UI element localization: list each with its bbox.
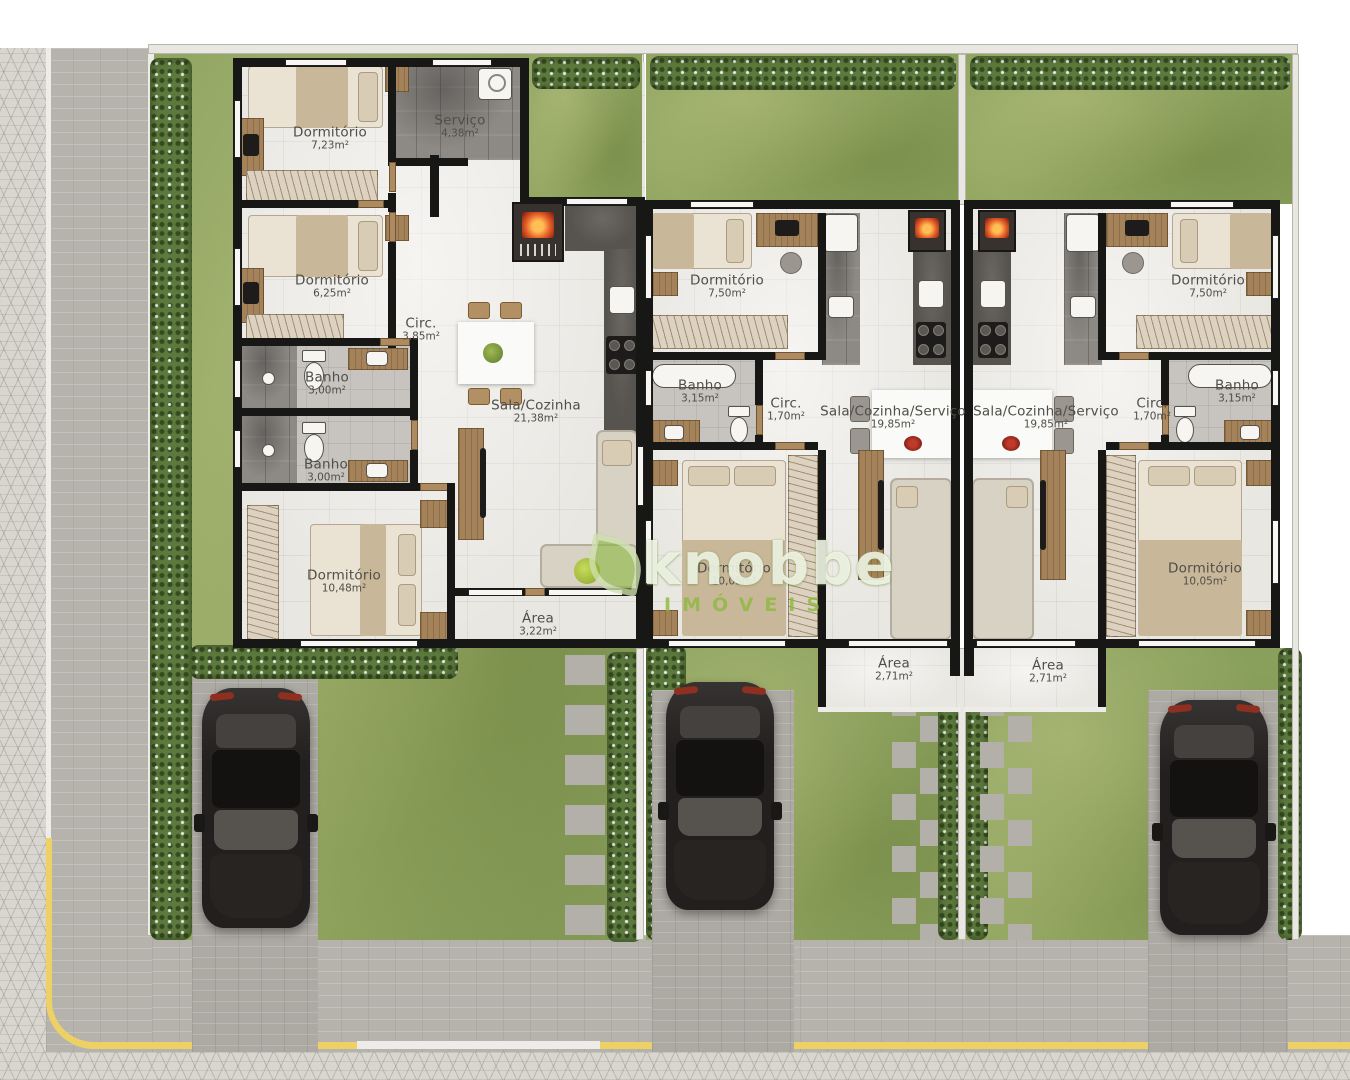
door <box>775 352 805 360</box>
bed-blanket <box>652 213 694 269</box>
house1-notch-hedge <box>532 57 640 89</box>
laundry-sink <box>1070 296 1096 318</box>
window <box>1272 370 1279 406</box>
wall <box>950 648 960 676</box>
wall <box>648 442 775 450</box>
lot2-hedge-top <box>650 56 956 90</box>
grill-fire <box>522 212 554 238</box>
sofa-cushion <box>602 440 632 466</box>
bed-blanket <box>296 66 348 128</box>
toilet-bowl <box>730 417 748 443</box>
room-label-h2-sala: Sala/Cozinha/Serviço 19,85m² <box>820 404 966 431</box>
room-name: Dormitório <box>1168 561 1242 577</box>
bath-basin <box>664 425 684 440</box>
bed-pillow <box>734 466 776 486</box>
window <box>1138 640 1256 647</box>
window <box>285 59 347 66</box>
porch-edge <box>964 707 1106 712</box>
sidewalk-left <box>0 48 46 1080</box>
chair <box>468 388 490 405</box>
room-name: Sala/Cozinha <box>491 398 581 414</box>
cooktop <box>978 322 1008 358</box>
car-3 <box>1160 700 1268 935</box>
window <box>1272 520 1279 584</box>
wall <box>430 155 439 217</box>
toilet <box>728 406 750 417</box>
window <box>300 640 418 647</box>
door <box>411 420 418 450</box>
kitchen-sink <box>609 286 635 314</box>
wall <box>1106 442 1119 450</box>
room-area: 3,00m² <box>304 472 348 484</box>
door <box>389 212 396 242</box>
car-windshield <box>1172 819 1256 858</box>
wall <box>1149 442 1276 450</box>
car-hood <box>210 854 302 918</box>
room-label-h1-dormitorio2: Dormitório 6,25m² <box>295 273 369 300</box>
window <box>637 446 644 506</box>
porch-edge <box>818 707 960 712</box>
grill-fire <box>985 218 1009 238</box>
lot1-hedge-road <box>150 58 192 940</box>
toilet-bowl <box>1176 417 1194 443</box>
room-area: 3,00m² <box>305 385 349 397</box>
car-1 <box>202 688 310 928</box>
room-label-h3-sala: Sala/Cozinha/Serviço 19,85m² <box>973 404 1119 431</box>
wardrobe <box>246 170 378 202</box>
site-plan: Dormitório 7,23m² Serviço 4,38m² Dormitó… <box>0 0 1350 1080</box>
room-label-h1-servico: Serviço 4,38m² <box>434 113 485 140</box>
room-label-h3-banho: Banho 3,15m² <box>1215 378 1259 405</box>
table-flowers <box>904 436 922 451</box>
room-area: 10,48m² <box>307 583 381 595</box>
bed-blanket <box>1138 540 1242 636</box>
room-name: Banho <box>305 370 349 386</box>
room-label-h2-banho: Banho 3,15m² <box>678 378 722 405</box>
bath-basin <box>366 351 388 366</box>
nightstand <box>420 500 450 528</box>
sofa-cushion <box>896 486 918 508</box>
tv <box>480 448 486 518</box>
nightstand <box>1246 272 1272 296</box>
room-name: Área <box>1029 658 1067 674</box>
room-label-h1-banho2: Banho 3,00m² <box>304 457 348 484</box>
door <box>420 483 450 491</box>
chair <box>468 302 490 319</box>
wall <box>1098 213 1106 360</box>
room-area: 2,71m² <box>875 671 913 683</box>
nightstand <box>1246 610 1272 636</box>
bed-pillow <box>1194 466 1236 486</box>
car-windshield <box>678 798 762 836</box>
fridge <box>1066 214 1100 252</box>
room-name: Circ. <box>767 396 805 412</box>
watermark-brand: knobbe <box>642 530 896 598</box>
watermark: knobbe IMÓVEIS <box>580 528 840 628</box>
desk-chair <box>780 252 802 274</box>
car-mirror <box>771 802 782 820</box>
fridge <box>824 214 858 252</box>
wall <box>1106 352 1119 360</box>
wall <box>388 62 396 160</box>
nightstand <box>420 612 450 640</box>
desk-computer <box>243 282 259 304</box>
lot3-stepping-stones <box>980 690 1032 940</box>
table-flowers <box>1002 436 1020 451</box>
wall <box>388 158 468 166</box>
shower-head <box>262 372 275 385</box>
car-taillight <box>210 692 235 701</box>
window <box>566 198 628 205</box>
window <box>234 100 241 158</box>
watermark-subtitle: IMÓVEIS <box>664 594 831 616</box>
lot3-hedge-top <box>970 56 1290 90</box>
window <box>468 589 523 596</box>
room-area: 21,38m² <box>491 413 581 425</box>
car-mirror <box>194 814 205 832</box>
room-area: 1,70m² <box>1133 411 1171 423</box>
lot1-stepping-stones <box>565 655 605 940</box>
nightstand <box>652 272 678 296</box>
room-name: Circ. <box>402 316 440 332</box>
washer-drum <box>488 74 506 92</box>
door <box>358 200 384 208</box>
room-label-h2-circ: Circ. 1,70m² <box>767 396 805 423</box>
curb-left-white <box>46 48 51 840</box>
car-rear-window <box>680 706 760 738</box>
room-name: Dormitório <box>307 568 381 584</box>
shower-head <box>262 444 275 457</box>
window <box>645 370 652 406</box>
wall <box>233 639 645 648</box>
room-name: Serviço <box>434 113 485 129</box>
window <box>432 59 492 66</box>
room-name: Dormitório <box>690 273 764 289</box>
room-label-h3-area: Área 2,71m² <box>1029 658 1067 685</box>
car-roof <box>1170 760 1258 817</box>
car-hood <box>674 840 766 900</box>
wall <box>818 213 826 360</box>
bed-blanket <box>296 215 348 277</box>
table-plant <box>483 343 503 363</box>
toilet <box>1174 406 1196 417</box>
window <box>234 248 241 306</box>
wall <box>1098 648 1106 712</box>
room-area: 7,23m² <box>293 140 367 152</box>
desk-computer <box>775 220 799 236</box>
wardrobe <box>247 505 279 640</box>
chair <box>500 302 522 319</box>
desk-chair <box>1122 252 1144 274</box>
fence-divider1-bottom <box>636 648 644 940</box>
car-hood <box>1168 862 1260 924</box>
car-roof <box>676 740 764 796</box>
nightstand <box>652 460 678 486</box>
room-area: 3,22m² <box>519 626 557 638</box>
room-label-h1-banho1: Banho 3,00m² <box>305 370 349 397</box>
window <box>668 640 786 647</box>
window <box>645 235 652 299</box>
room-label-h1-area: Área 3,22m² <box>519 611 557 638</box>
room-area: 10,05m² <box>1168 576 1242 588</box>
car-taillight <box>742 686 767 695</box>
wall <box>237 483 420 491</box>
window <box>234 430 241 468</box>
door <box>756 405 763 435</box>
car-mirror <box>1152 823 1163 841</box>
room-area: 1,70m² <box>767 411 805 423</box>
bath-basin <box>1240 425 1260 440</box>
porch-door <box>525 588 545 596</box>
sliding-door <box>976 640 1076 647</box>
cooktop <box>916 322 946 358</box>
wall <box>818 648 826 712</box>
bed-pillow <box>398 534 416 576</box>
bed-pillow <box>358 72 378 122</box>
wall <box>805 352 818 360</box>
fence-top <box>148 44 1298 54</box>
car-taillight <box>1168 704 1193 713</box>
room-area: 3,85m² <box>402 331 440 343</box>
wall <box>964 648 974 676</box>
tv <box>1040 480 1046 550</box>
driveway-apron-marking <box>357 1041 600 1049</box>
wardrobe <box>652 315 788 349</box>
room-area: 7,50m² <box>1171 288 1245 300</box>
room-name: Área <box>519 611 557 627</box>
car-mirror <box>307 814 318 832</box>
kitchen-sink <box>980 280 1006 308</box>
wall <box>520 58 529 206</box>
lot2-stepping-stones <box>892 690 944 940</box>
room-area: 6,25m² <box>295 288 369 300</box>
watermark-leaf-icon <box>583 533 647 597</box>
door <box>1119 442 1149 450</box>
car-rear-window <box>216 714 296 748</box>
window <box>1272 235 1279 299</box>
bed-pillow <box>1180 219 1198 263</box>
room-name: Dormitório <box>293 125 367 141</box>
room-label-h3-dormitorio2: Dormitório 10,05m² <box>1168 561 1242 588</box>
lot1-hedge-front <box>190 645 458 679</box>
car-roof <box>212 750 300 808</box>
room-name: Banho <box>304 457 348 473</box>
car-taillight <box>674 686 699 695</box>
room-name: Banho <box>678 378 722 394</box>
wall <box>237 408 417 416</box>
wardrobe <box>1106 455 1136 637</box>
bath-basin <box>366 463 388 478</box>
sidewalk-bottom <box>0 1052 1350 1080</box>
wall <box>805 442 818 450</box>
room-area: 7,50m² <box>690 288 764 300</box>
room-area: 3,15m² <box>1215 393 1259 405</box>
room-area: 19,85m² <box>820 419 966 431</box>
desk-computer <box>1125 220 1149 236</box>
room-label-h1-dormitorio3: Dormitório 10,48m² <box>307 568 381 595</box>
grill-fire <box>915 218 939 238</box>
bed-pillow <box>688 466 730 486</box>
room-label-h1-dormitorio1: Dormitório 7,23m² <box>293 125 367 152</box>
toilet <box>302 422 326 434</box>
room-area: 19,85m² <box>973 419 1119 431</box>
window <box>1170 201 1234 208</box>
room-name: Sala/Cozinha/Serviço <box>973 404 1119 420</box>
wall <box>755 360 763 405</box>
fence-divider2-top <box>958 54 966 205</box>
room-label-h2-dormitorio1: Dormitório 7,50m² <box>690 273 764 300</box>
room-area: 4,38m² <box>434 128 485 140</box>
door <box>775 442 805 450</box>
room-name: Sala/Cozinha/Serviço <box>820 404 966 420</box>
room-label-h2-area: Área 2,71m² <box>875 656 913 683</box>
room-label-h3-dormitorio1: Dormitório 7,50m² <box>1171 273 1245 300</box>
room-area: 3,15m² <box>678 393 722 405</box>
sofa-cushion <box>1006 486 1028 508</box>
sliding-door <box>848 640 948 647</box>
laundry-sink <box>828 296 854 318</box>
toilet <box>302 350 326 362</box>
room-name: Dormitório <box>295 273 369 289</box>
room-label-h3-circ: Circ. 1,70m² <box>1133 396 1171 423</box>
room-name: Circ. <box>1133 396 1171 412</box>
bed-blanket <box>1230 213 1272 269</box>
wardrobe <box>1136 315 1272 349</box>
wall <box>237 338 380 346</box>
fence-right <box>1292 54 1299 940</box>
door <box>389 162 396 192</box>
car-taillight <box>278 692 303 701</box>
wall <box>648 352 775 360</box>
wall <box>388 193 396 212</box>
car-taillight <box>1236 704 1261 713</box>
kitchen-sink <box>918 280 944 308</box>
kitchen-counter <box>565 205 640 251</box>
room-label-h1-sala: Sala/Cozinha 21,38m² <box>491 398 581 425</box>
cooktop <box>606 336 638 374</box>
room-label-h1-circ: Circ. 3,85m² <box>402 316 440 343</box>
wall <box>447 483 455 648</box>
desk-computer <box>243 134 259 156</box>
room-name: Área <box>875 656 913 672</box>
bed-pillow <box>358 221 378 271</box>
car-mirror <box>1265 823 1276 841</box>
wall <box>1098 450 1106 639</box>
bed-pillow <box>398 584 416 626</box>
car-mirror <box>658 802 669 820</box>
door <box>1119 352 1149 360</box>
room-name: Banho <box>1215 378 1259 394</box>
grill-grate <box>520 244 556 256</box>
room-area: 2,71m² <box>1029 673 1067 685</box>
car-windshield <box>214 810 298 850</box>
bed-pillow <box>726 219 744 263</box>
nightstand <box>1246 460 1272 486</box>
wall <box>1149 352 1276 360</box>
room-name: Dormitório <box>1171 273 1245 289</box>
bed-pillow <box>1148 466 1190 486</box>
window <box>234 360 241 398</box>
wall <box>388 242 396 348</box>
window <box>690 201 754 208</box>
car-rear-window <box>1174 725 1254 758</box>
car-2 <box>666 682 774 910</box>
